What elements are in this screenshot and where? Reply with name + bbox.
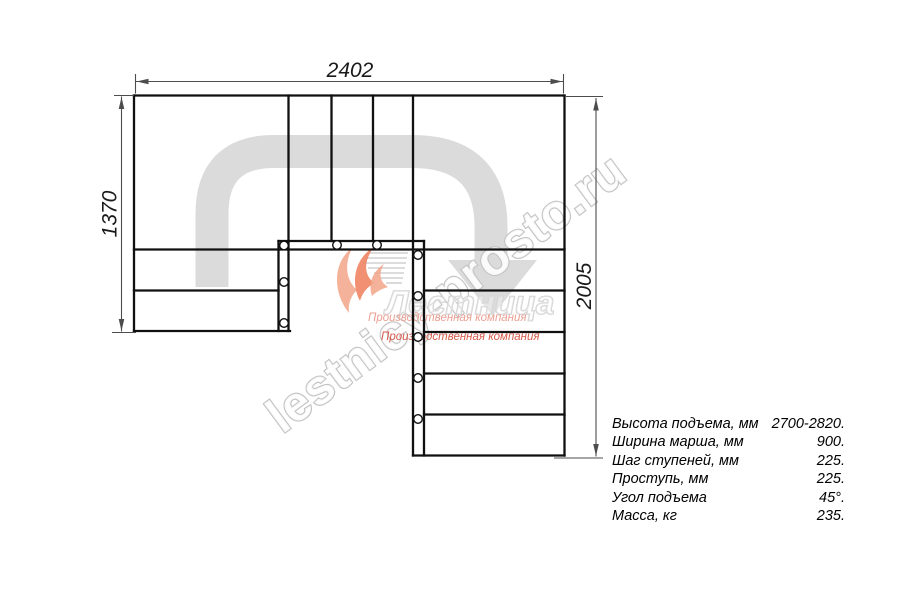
dim-arrow-down-icon xyxy=(593,444,599,456)
stair-plan-drawing: lestnicy-prosto.ru Лестница Производстве… xyxy=(0,0,900,600)
logo-subtitle-faded: Производственная компания xyxy=(368,312,527,324)
spec-label: Масса, кг xyxy=(612,507,677,525)
dim-arrow-up-icon xyxy=(119,97,125,109)
spec-value: 225. xyxy=(817,452,845,470)
spec-value: 900. xyxy=(817,433,845,451)
spec-row: Угол подъема 45°. xyxy=(612,489,845,507)
bolt-hole xyxy=(280,241,289,250)
bolt-hole xyxy=(414,415,423,424)
spec-value: 2700-2820. xyxy=(772,415,845,433)
dim-left-height-value: 1370 xyxy=(99,190,122,237)
bolt-hole xyxy=(414,251,423,260)
spec-row: Масса, кг 235. xyxy=(612,507,845,525)
bolt-hole xyxy=(373,241,382,250)
dim-arrow-right-icon xyxy=(551,79,563,85)
dim-arrow-left-icon xyxy=(137,79,149,85)
bolt-hole xyxy=(280,278,289,287)
bolt-hole xyxy=(414,333,423,342)
dim-arrow-down-icon xyxy=(119,319,125,331)
bolt-hole xyxy=(414,374,423,383)
spec-label: Высота подъема, мм xyxy=(612,415,759,433)
spec-value: 235. xyxy=(817,507,845,525)
spec-value: 45°. xyxy=(819,489,845,507)
bolt-hole xyxy=(333,241,342,250)
bolt-hole xyxy=(280,319,289,328)
spec-row: Высота подъема, мм 2700-2820. xyxy=(612,415,845,433)
logo-hatch-lines-icon xyxy=(363,253,408,283)
spec-label: Ширина марша, мм xyxy=(612,433,744,451)
spec-label: Шаг ступеней, мм xyxy=(612,452,739,470)
spec-table: Высота подъема, мм 2700-2820. Ширина мар… xyxy=(612,415,845,525)
spec-value: 225. xyxy=(817,470,845,488)
dim-top-width-value: 2402 xyxy=(326,59,374,82)
spec-label: Проступь, мм xyxy=(612,470,708,488)
dim-arrow-up-icon xyxy=(593,99,599,111)
spec-row: Шаг ступеней, мм 225. xyxy=(612,452,845,470)
spec-label: Угол подъема xyxy=(612,489,707,507)
spec-row: Проступь, мм 225. xyxy=(612,470,845,488)
dim-right-height-value: 2005 xyxy=(573,262,596,310)
spec-row: Ширина марша, мм 900. xyxy=(612,433,845,451)
bolt-hole xyxy=(414,292,423,301)
logo-flame-icon xyxy=(337,247,388,313)
